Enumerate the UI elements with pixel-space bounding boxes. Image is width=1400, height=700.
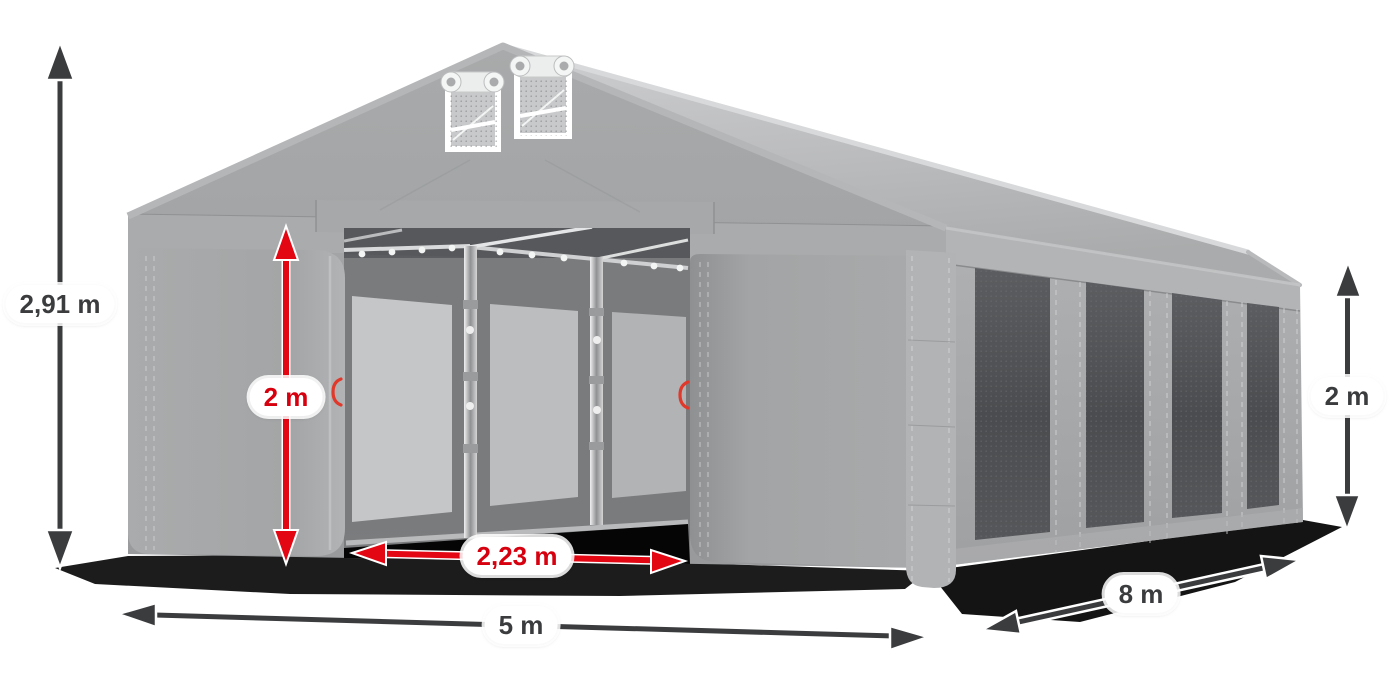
interior-window-1 (352, 296, 452, 522)
corner-cover (906, 250, 956, 588)
entrance-right-panel (690, 254, 928, 568)
dimension-label-total-height: 2,91 m (6, 285, 115, 323)
interior-window-2 (490, 304, 578, 506)
gable-vent-1 (441, 72, 504, 149)
gable-vent-2 (510, 56, 574, 136)
tent-illustration (0, 0, 1400, 700)
side-wall (928, 228, 1303, 568)
dimension-label-side-length: 8 m (1105, 575, 1178, 613)
dimension-label-entrance-width: 2,23 m (463, 537, 572, 575)
entrance-interior (344, 227, 690, 564)
dimension-label-side-wall-height: 2 m (1311, 377, 1384, 415)
dimension-label-entrance-height: 2 m (250, 378, 323, 416)
dimension-label-front-width: 5 m (485, 606, 558, 644)
tent-dimension-diagram: 2,91 m 2 m 2,23 m 5 m 8 m 2 m (0, 0, 1400, 700)
interior-window-3 (612, 312, 686, 498)
